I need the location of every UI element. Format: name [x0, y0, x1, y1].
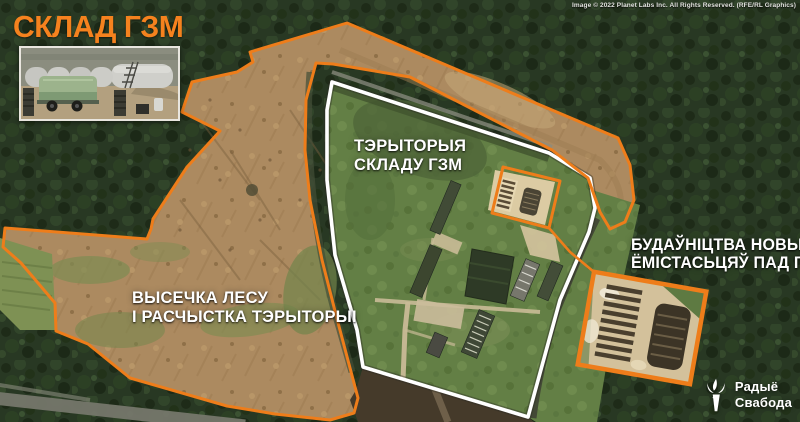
- logo-text: Радыё Свабода: [735, 379, 792, 410]
- logo-text-line2: Свабода: [735, 395, 792, 411]
- construction-label-line2: ЁМІСТАСЬЦЯЎ ПАД ГЗМ: [631, 254, 800, 272]
- territory-label-line2: СКЛАДУ ГЗМ: [354, 155, 466, 174]
- fuel-tanks-photo: [21, 48, 178, 119]
- rferl-logo: Радыё Свабода: [703, 377, 792, 413]
- construction-label: БУДАЎНІЦТВА НОВЫХ ЁМІСТАСЬЦЯЎ ПАД ГЗМ: [631, 236, 800, 273]
- territory-label-line1: ТЭРЫТОРЫЯ: [354, 136, 466, 155]
- construction-inset: [577, 272, 707, 385]
- construction-label-line1: БУДАЎНІЦТВА НОВЫХ: [631, 236, 800, 254]
- annotated-satellite-image: СКЛАД ГЗМ: [0, 0, 800, 422]
- white-barrel: [154, 98, 163, 111]
- map-title: СКЛАД ГЗМ: [13, 9, 183, 45]
- credit-text: Image © 2022 Planet Labs Inc. All Rights…: [572, 2, 796, 9]
- clearing-label-line2: І РАСЧЫСТКА ТЭРЫТОРЫІ: [132, 307, 357, 326]
- dark-crate: [136, 104, 149, 114]
- clearing-label-line1: ВЫСЕЧКА ЛЕСУ: [132, 288, 357, 307]
- territory-label: ТЭРЫТОРЫЯ СКЛАДУ ГЗМ: [354, 136, 466, 174]
- logo-text-line1: Радыё: [735, 379, 792, 395]
- torch-icon: [703, 377, 729, 413]
- photo-inset: [19, 46, 180, 121]
- clearing-label: ВЫСЕЧКА ЛЕСУ І РАСЧЫСТКА ТЭРЫТОРЫІ: [132, 288, 357, 326]
